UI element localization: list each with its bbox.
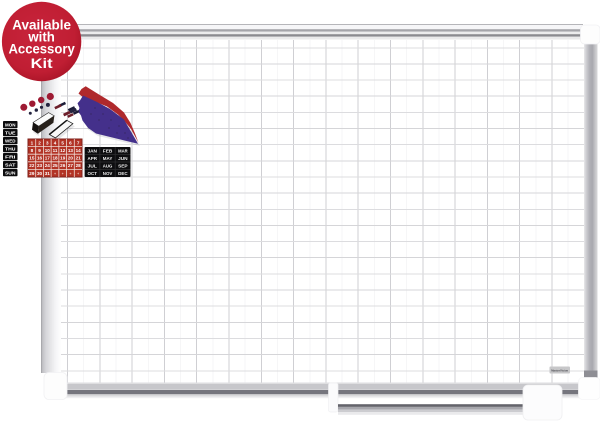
svg-text:17: 17 <box>45 156 51 161</box>
svg-text:24: 24 <box>45 163 51 168</box>
svg-text:19: 19 <box>60 156 66 161</box>
svg-text:31: 31 <box>45 171 51 176</box>
svg-text:MasterVision: MasterVision <box>551 369 568 373</box>
svg-text:DEC: DEC <box>118 171 128 176</box>
svg-text:28: 28 <box>76 163 82 168</box>
svg-text:16: 16 <box>37 156 43 161</box>
svg-text:25: 25 <box>52 163 58 168</box>
svg-text:SEP: SEP <box>118 163 128 168</box>
svg-text:7: 7 <box>77 140 80 145</box>
svg-text:SUN: SUN <box>5 170 16 175</box>
svg-text:TUE: TUE <box>5 130 16 135</box>
svg-text:22: 22 <box>29 163 35 168</box>
svg-text:+: + <box>62 172 64 176</box>
svg-text:JUN: JUN <box>118 156 128 161</box>
svg-text:WED: WED <box>5 138 16 143</box>
svg-text:11: 11 <box>53 148 58 153</box>
svg-text:2: 2 <box>38 140 41 145</box>
svg-text:10: 10 <box>45 148 51 153</box>
svg-text:14: 14 <box>76 148 82 153</box>
svg-text:OCT: OCT <box>88 171 98 176</box>
svg-text:+: + <box>69 172 71 176</box>
svg-text:9: 9 <box>38 148 41 153</box>
svg-text:20: 20 <box>68 156 74 161</box>
svg-text:29: 29 <box>29 171 35 176</box>
svg-text:Accessory: Accessory <box>8 40 74 56</box>
svg-text:JUL: JUL <box>88 163 98 168</box>
svg-text:30: 30 <box>37 171 43 176</box>
svg-text:AUG: AUG <box>103 163 113 168</box>
svg-text:15: 15 <box>29 156 35 161</box>
svg-text:6: 6 <box>69 140 72 145</box>
svg-text:APR: APR <box>88 156 98 161</box>
svg-text:21: 21 <box>76 156 82 161</box>
svg-text:12: 12 <box>60 148 66 153</box>
svg-text:8: 8 <box>31 148 34 153</box>
svg-text:JAN: JAN <box>88 148 98 153</box>
svg-text:1: 1 <box>31 140 34 145</box>
svg-text:26: 26 <box>60 163 66 168</box>
svg-text:+: + <box>77 172 79 176</box>
svg-text:THU: THU <box>5 146 16 151</box>
svg-text:18: 18 <box>52 156 58 161</box>
svg-text:SAT: SAT <box>5 162 16 167</box>
svg-text:FEB: FEB <box>103 148 113 153</box>
svg-text:MON: MON <box>5 122 16 127</box>
svg-text:+: + <box>54 172 56 176</box>
svg-text:3: 3 <box>46 140 49 145</box>
svg-text:MAY: MAY <box>103 156 113 161</box>
svg-text:23: 23 <box>37 163 43 168</box>
svg-text:MAR: MAR <box>118 148 128 153</box>
svg-text:Kit: Kit <box>31 55 53 71</box>
svg-text:13: 13 <box>68 148 74 153</box>
svg-text:27: 27 <box>68 163 74 168</box>
svg-text:4: 4 <box>54 140 57 145</box>
svg-text:5: 5 <box>61 140 64 145</box>
svg-text:FRI: FRI <box>5 154 16 159</box>
svg-text:NOV: NOV <box>103 171 113 176</box>
